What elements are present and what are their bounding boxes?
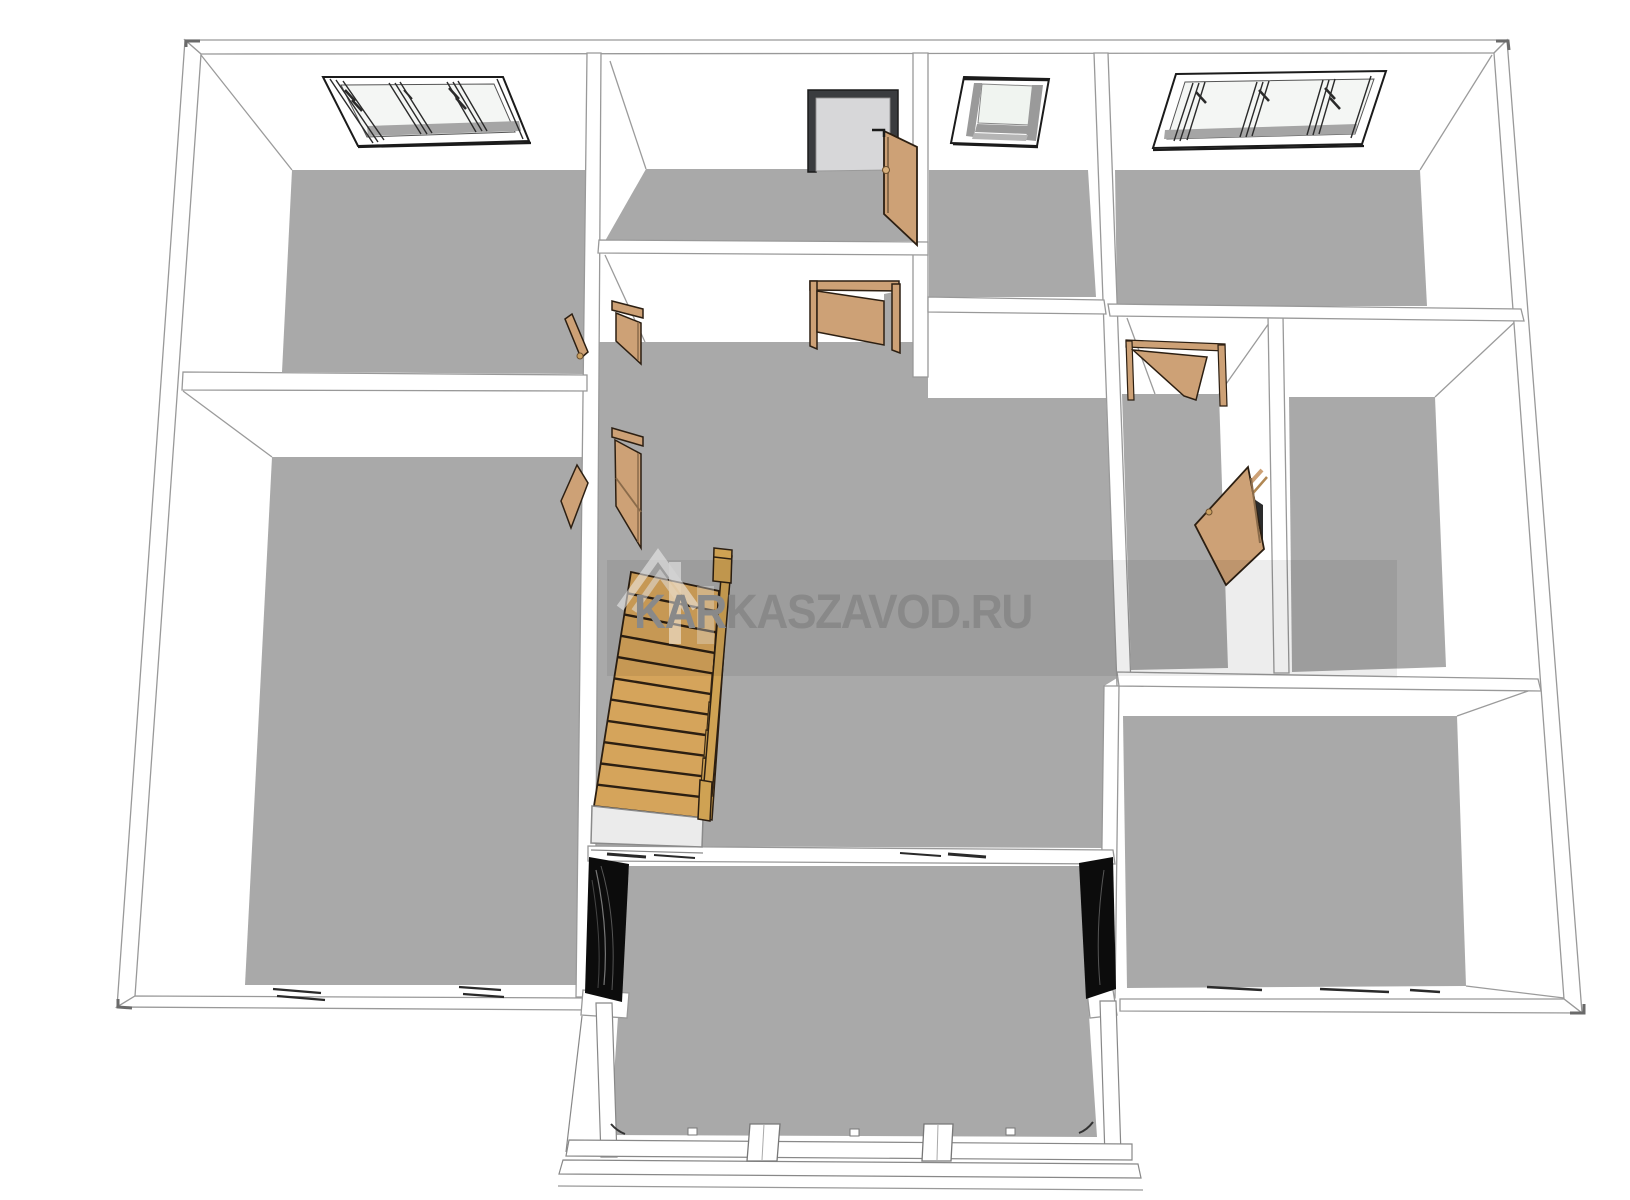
svg-text:KARKASZAVOD.RU: KARKASZAVOD.RU [634,586,1032,639]
